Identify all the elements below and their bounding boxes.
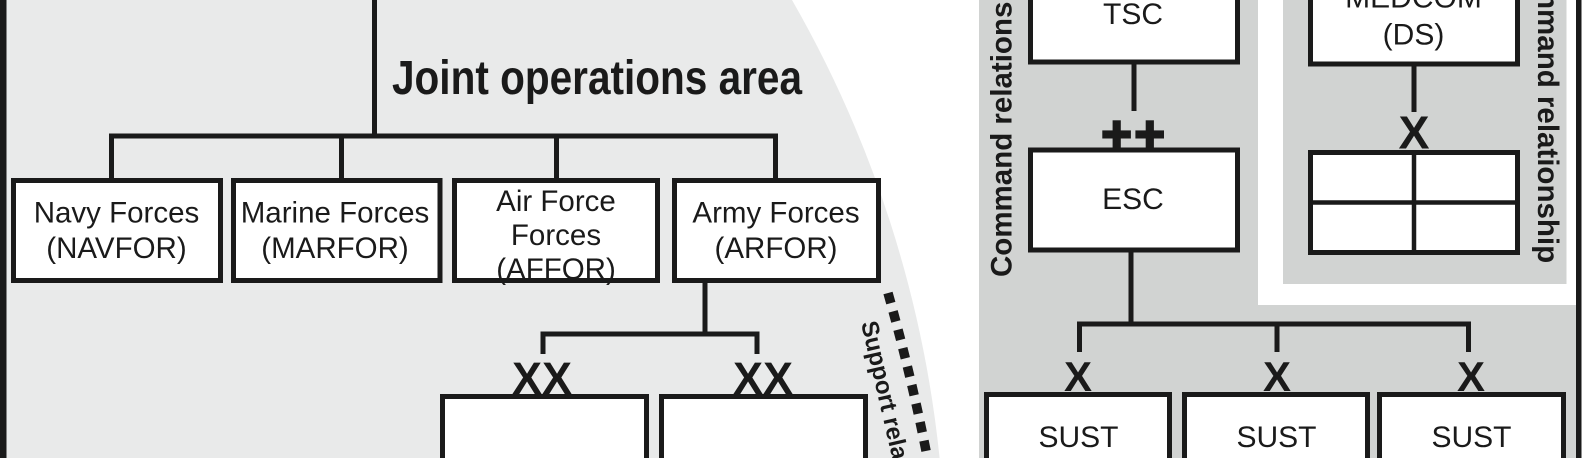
svg-text:Forces: Forces: [511, 219, 601, 252]
svg-text:ESC: ESC: [1102, 183, 1164, 216]
svg-text:TSC: TSC: [1103, 0, 1163, 31]
svg-text:SUST: SUST: [1431, 421, 1511, 454]
svg-text:Air Force: Air Force: [496, 185, 616, 218]
svg-text:(MARFOR): (MARFOR): [261, 232, 408, 265]
svg-text:Marine Forces: Marine Forces: [241, 197, 430, 230]
svg-text:Army Forces: Army Forces: [692, 197, 859, 230]
svg-text:(DS): (DS): [1383, 19, 1445, 52]
svg-text:Command relationship: Command relationship: [1531, 0, 1564, 263]
svg-text:Command relations: Command relations: [986, 2, 1019, 277]
svg-text:Navy Forces: Navy Forces: [34, 197, 200, 230]
svg-text:MEDCOM: MEDCOM: [1345, 0, 1482, 15]
svg-text:SUST: SUST: [1236, 421, 1316, 454]
svg-text:(ARFOR): (ARFOR): [715, 232, 838, 265]
svg-text:SUST: SUST: [1038, 421, 1118, 454]
svg-text:(NAVFOR): (NAVFOR): [46, 232, 186, 265]
svg-text:(AFFOR): (AFFOR): [496, 253, 616, 286]
svg-text:Joint operations area: Joint operations area: [392, 52, 802, 105]
